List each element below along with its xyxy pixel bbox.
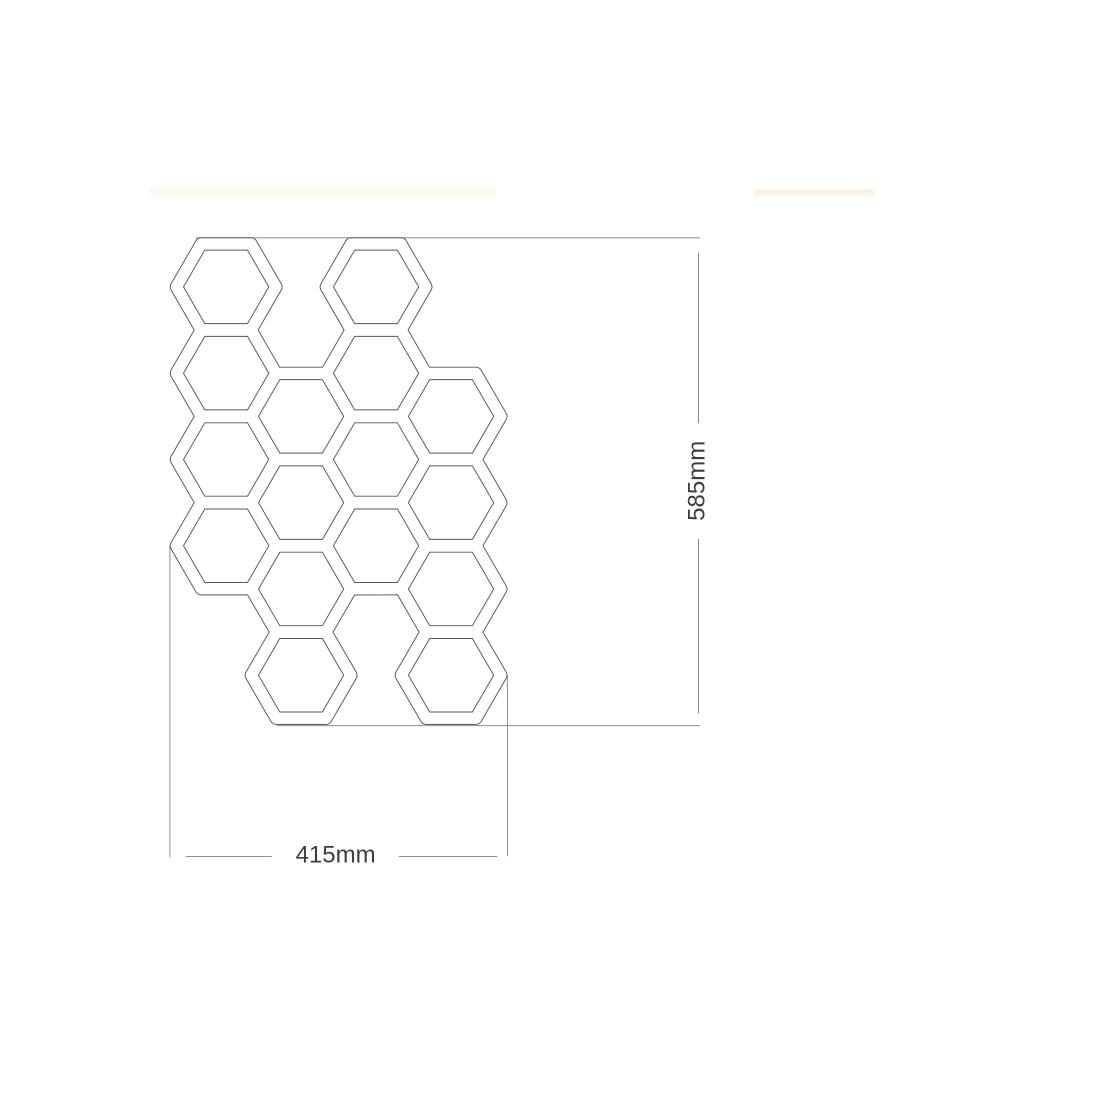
svg-text:415mm: 415mm	[296, 842, 376, 869]
svg-text:585mm: 585mm	[684, 441, 711, 521]
